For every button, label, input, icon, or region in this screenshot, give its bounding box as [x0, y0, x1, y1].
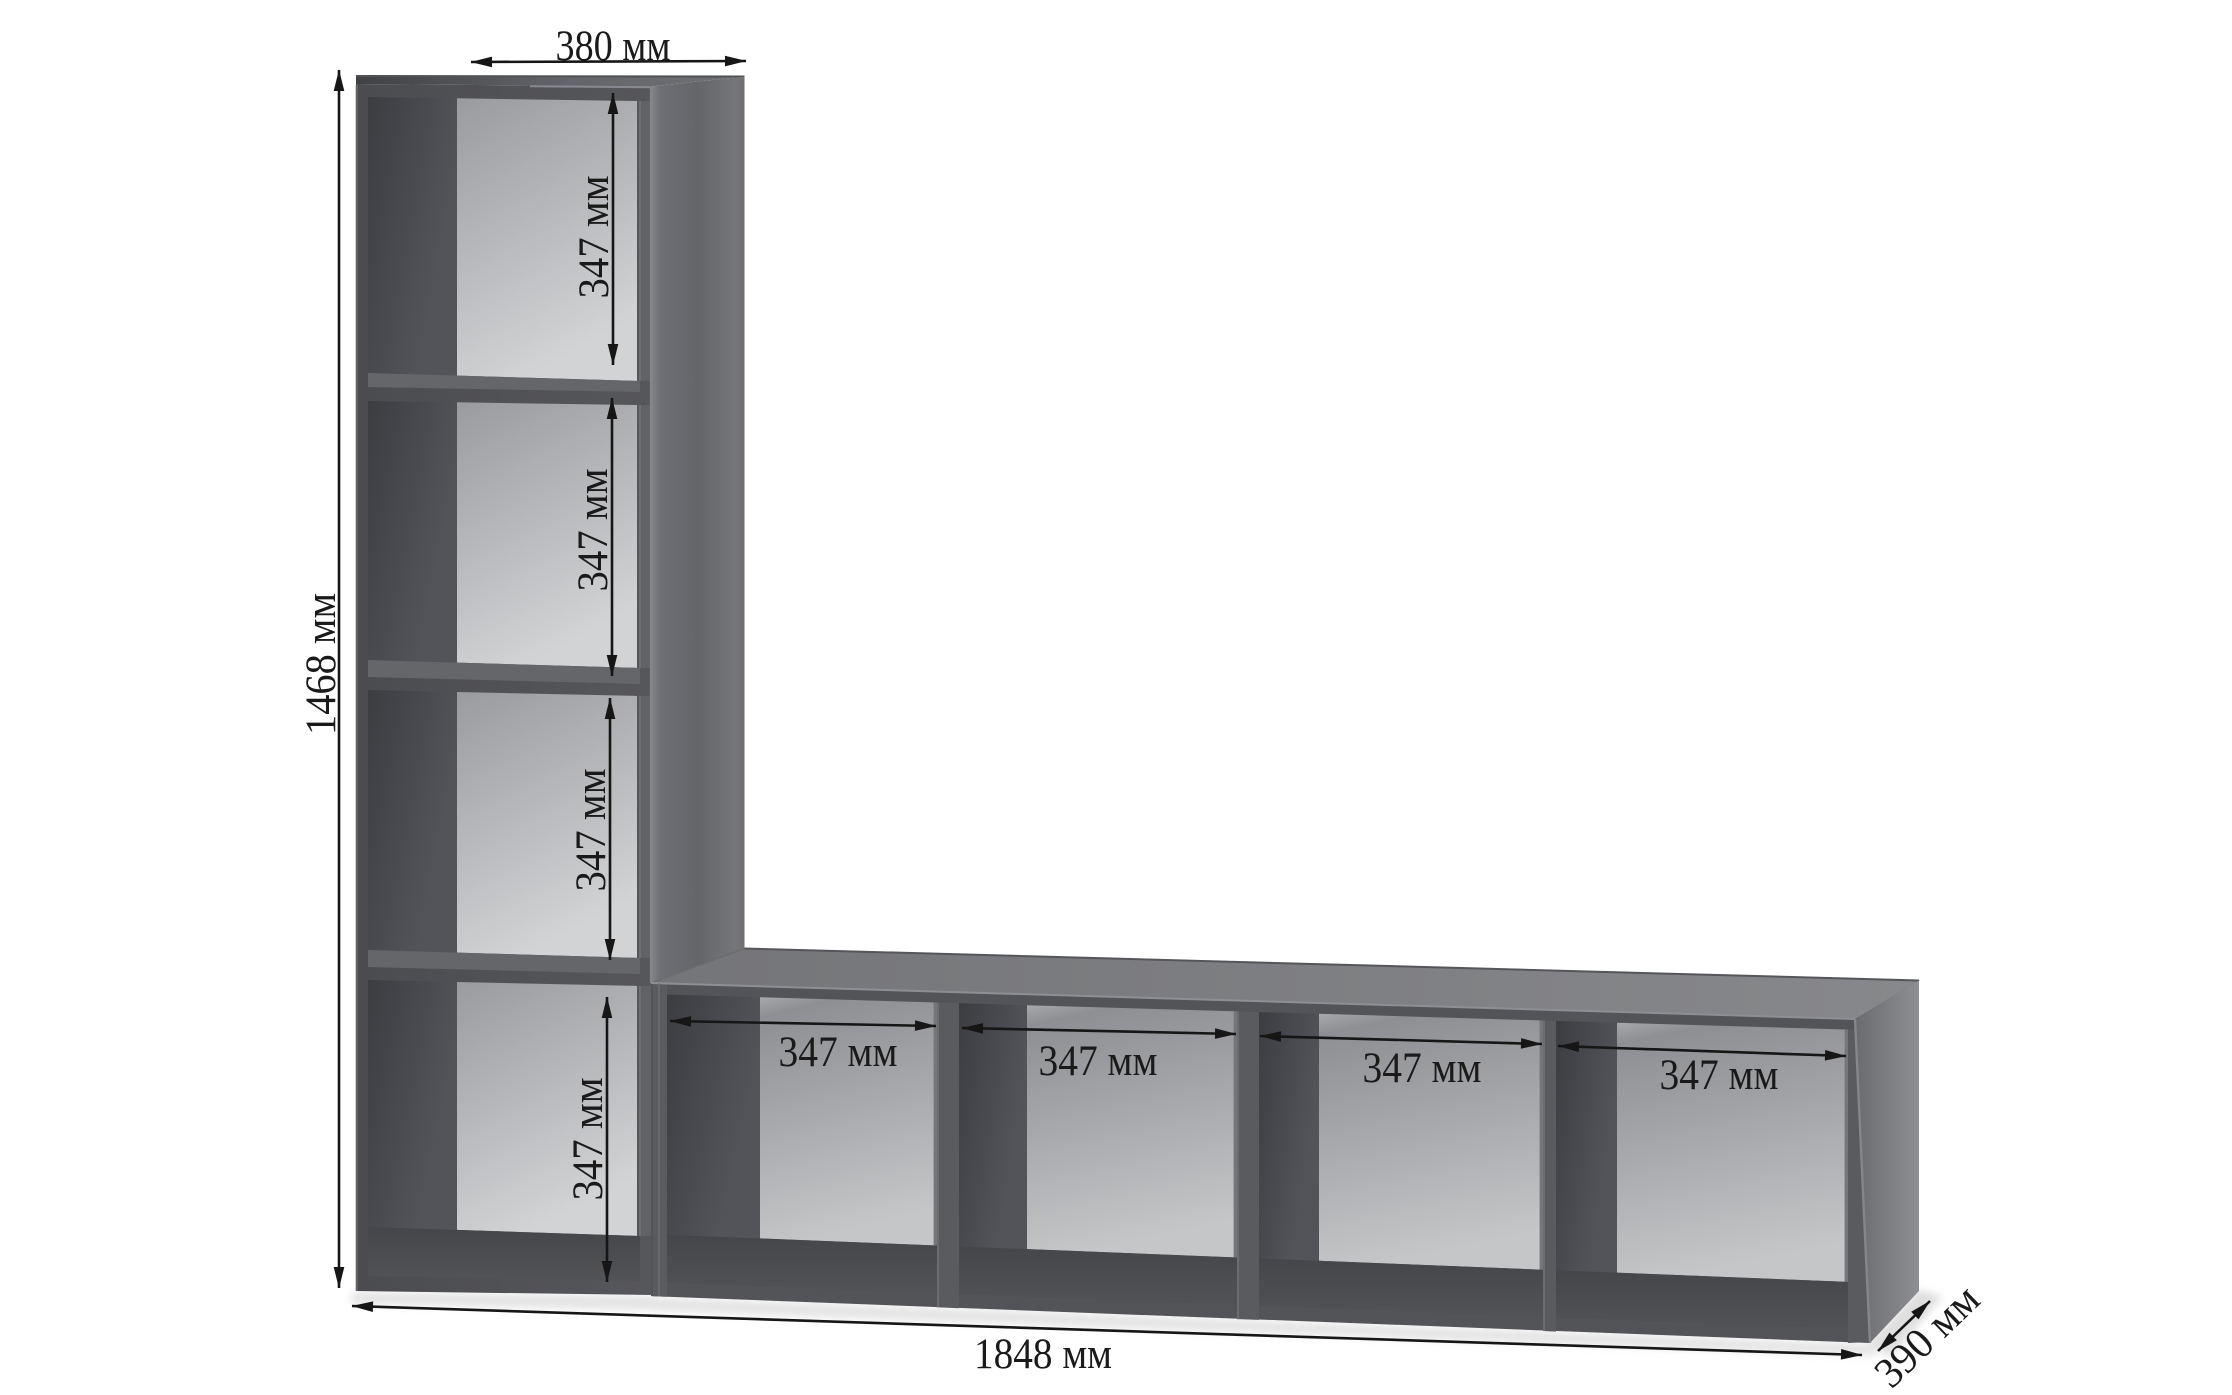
svg-text:347 мм: 347 мм	[1363, 1045, 1482, 1092]
svg-text:380 мм: 380 мм	[556, 23, 671, 70]
svg-text:347 мм: 347 мм	[1039, 1038, 1158, 1085]
svg-text:347 мм: 347 мм	[779, 1029, 898, 1076]
svg-text:347 мм: 347 мм	[1660, 1052, 1779, 1099]
svg-text:347 мм: 347 мм	[568, 769, 615, 892]
svg-text:347 мм: 347 мм	[571, 176, 618, 299]
svg-text:1468 мм: 1468 мм	[298, 593, 345, 735]
svg-text:1848 мм: 1848 мм	[974, 1331, 1112, 1378]
svg-text:347 мм: 347 мм	[565, 1078, 612, 1201]
svg-text:347 мм: 347 мм	[570, 469, 617, 592]
